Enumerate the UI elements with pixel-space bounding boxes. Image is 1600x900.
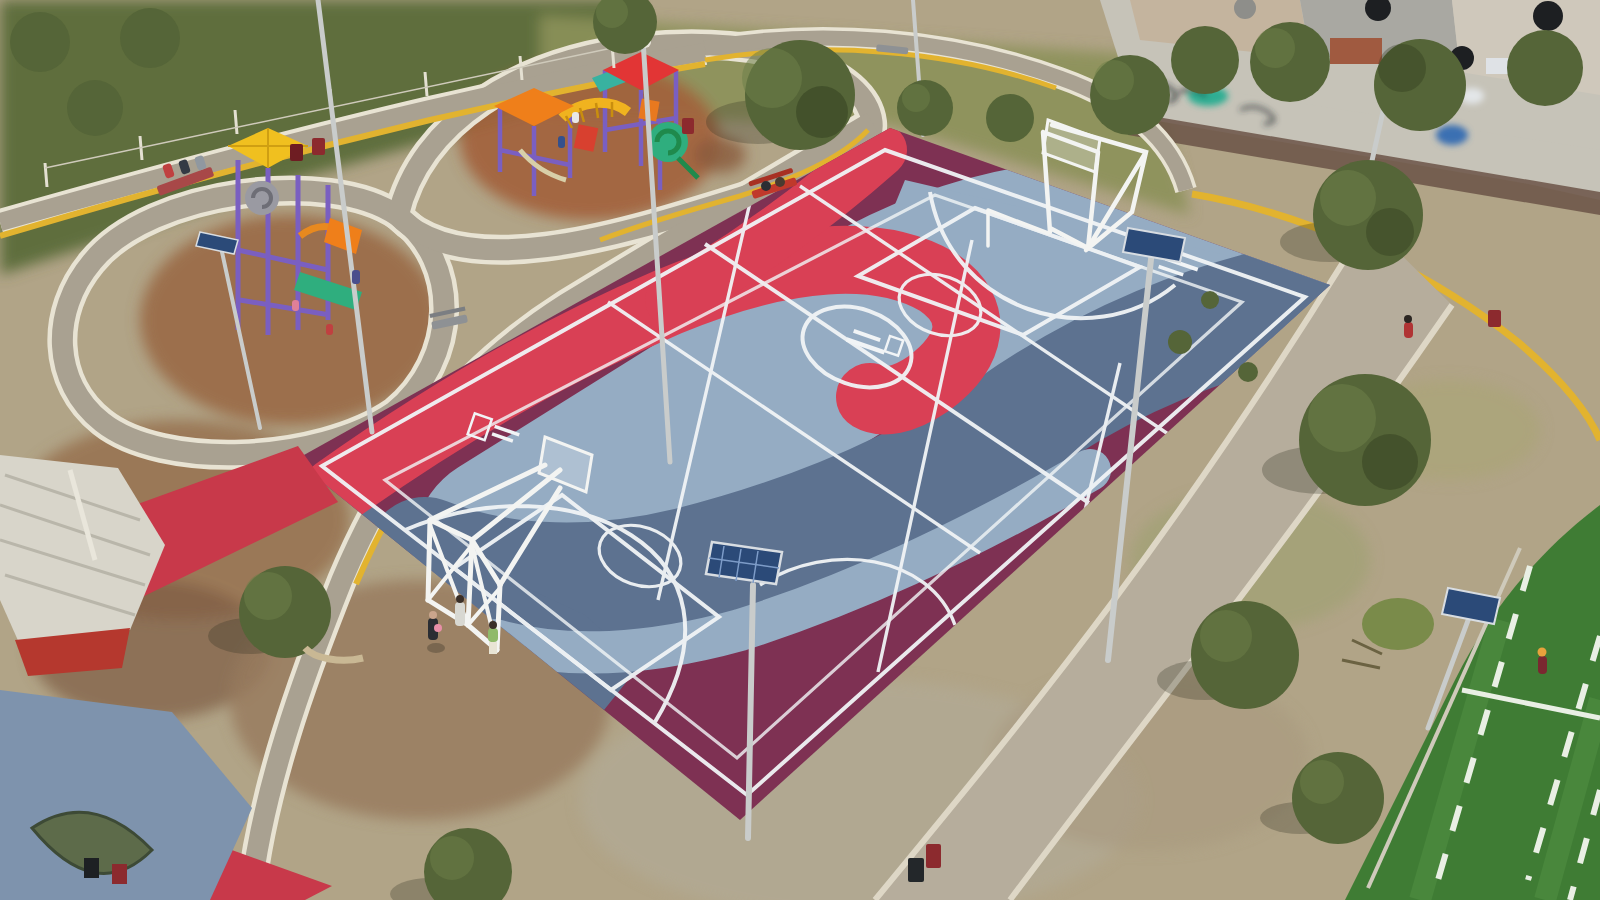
turf-player xyxy=(1538,648,1548,675)
tree xyxy=(986,94,1034,142)
tree xyxy=(239,566,331,658)
person xyxy=(1538,656,1547,674)
barrel-black xyxy=(84,858,99,878)
tree xyxy=(1374,39,1466,131)
barrel-red xyxy=(112,864,127,884)
bare-dirt-spot xyxy=(694,137,746,173)
tree xyxy=(1313,160,1423,270)
tree xyxy=(1191,601,1299,709)
brick-structure xyxy=(1330,38,1382,64)
shrub xyxy=(1362,598,1434,650)
sapling xyxy=(1238,362,1258,382)
water-tank xyxy=(1533,1,1563,31)
tree xyxy=(1250,22,1330,102)
spiral-slide-gray xyxy=(245,181,279,215)
park-aerial-photo xyxy=(0,0,1600,900)
person xyxy=(455,602,465,626)
person xyxy=(775,177,785,187)
graffiti-blue-blob xyxy=(1436,125,1468,145)
trash-bin xyxy=(1488,310,1501,327)
tree xyxy=(1299,374,1431,506)
person xyxy=(572,112,579,123)
barrel-black xyxy=(908,858,924,882)
person xyxy=(352,270,360,284)
scene-svg xyxy=(0,0,1600,900)
person xyxy=(761,181,771,191)
person xyxy=(1404,322,1413,338)
person xyxy=(292,300,299,311)
trash-bin xyxy=(682,118,694,134)
sapling xyxy=(1201,291,1219,309)
tree xyxy=(10,12,70,72)
person xyxy=(488,628,498,642)
tree xyxy=(67,80,123,136)
tree xyxy=(897,80,953,136)
person xyxy=(558,136,565,148)
sapling xyxy=(1168,330,1192,354)
tree xyxy=(1090,55,1170,135)
barrel-red xyxy=(926,844,941,868)
tree xyxy=(1171,26,1239,94)
path-walker xyxy=(1404,315,1413,338)
tree xyxy=(120,8,180,68)
person xyxy=(326,324,333,335)
tree xyxy=(1292,752,1384,844)
tree xyxy=(1507,30,1583,106)
pink-backpack xyxy=(434,624,442,632)
trash-bin xyxy=(290,144,303,161)
trash-bin xyxy=(312,138,325,155)
